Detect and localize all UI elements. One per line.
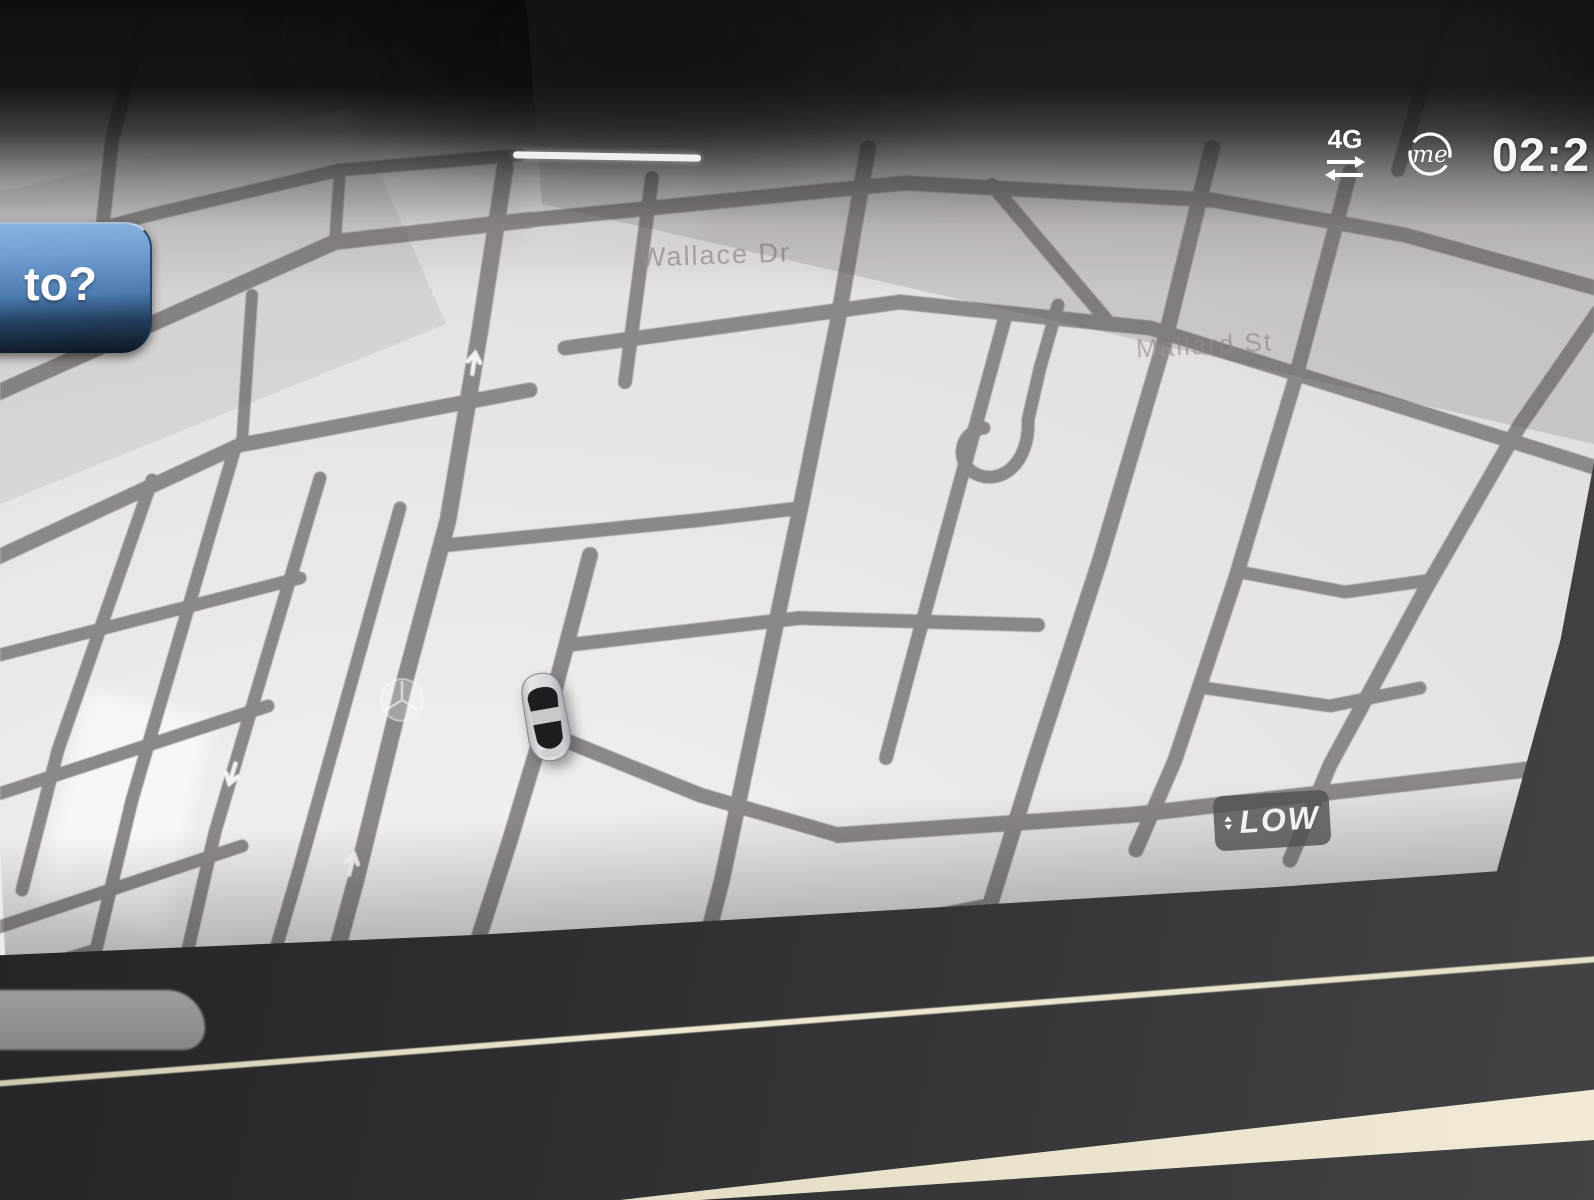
status-bar: 4G me 02:2 xyxy=(1322,126,1590,182)
svg-text:me: me xyxy=(1412,142,1447,168)
4g-data-icon: 4G xyxy=(1322,126,1368,182)
svg-text:4G: 4G xyxy=(1328,126,1363,154)
zoom-scale-arrows-icon xyxy=(1223,808,1233,838)
infotainment-screen-photo: Wallace Dr Mallard St to? 4G me 02:2 LOW xyxy=(0,0,1594,1200)
map-scale-badge[interactable]: LOW xyxy=(1212,790,1331,852)
where-to-button-label: to? xyxy=(24,256,97,311)
clock: 02:2 xyxy=(1492,127,1590,182)
mercedes-me-icon: me xyxy=(1404,128,1456,180)
where-to-button[interactable]: to? xyxy=(0,222,152,353)
map-scale-label: LOW xyxy=(1238,799,1321,841)
